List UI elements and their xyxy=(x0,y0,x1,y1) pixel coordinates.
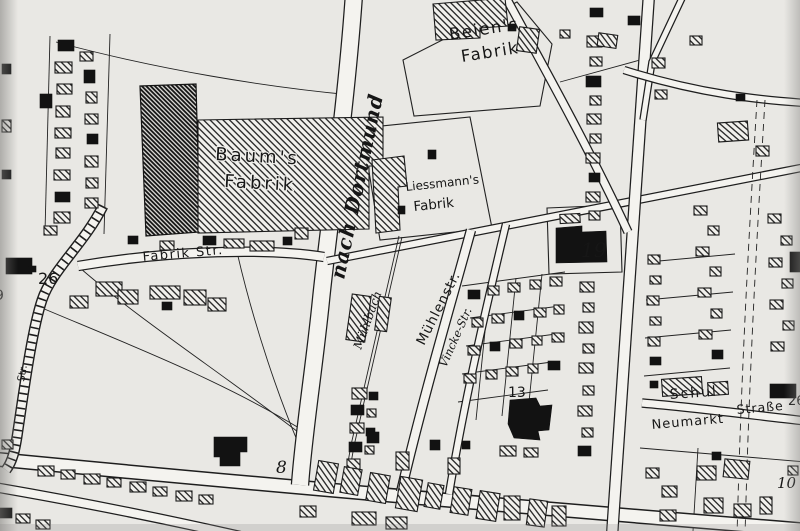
historical-map-image: Beien's Fabrik Baum's Fabrik nach Dortmu… xyxy=(0,0,800,531)
label-baums-fabrik-line1: Baum's xyxy=(215,144,301,169)
label-baums-fabrik-line2: Fabrik xyxy=(224,171,297,196)
street-label-schul: Schul xyxy=(669,384,718,403)
map-canvas: Beien's Fabrik Baum's Fabrik nach Dortmu… xyxy=(0,0,800,531)
plot-number-13: 13 xyxy=(508,385,526,401)
plot-number-19: 19 xyxy=(581,238,607,262)
plot-number-26: 26 xyxy=(38,269,58,288)
plot-number-8: 8 xyxy=(276,458,287,478)
